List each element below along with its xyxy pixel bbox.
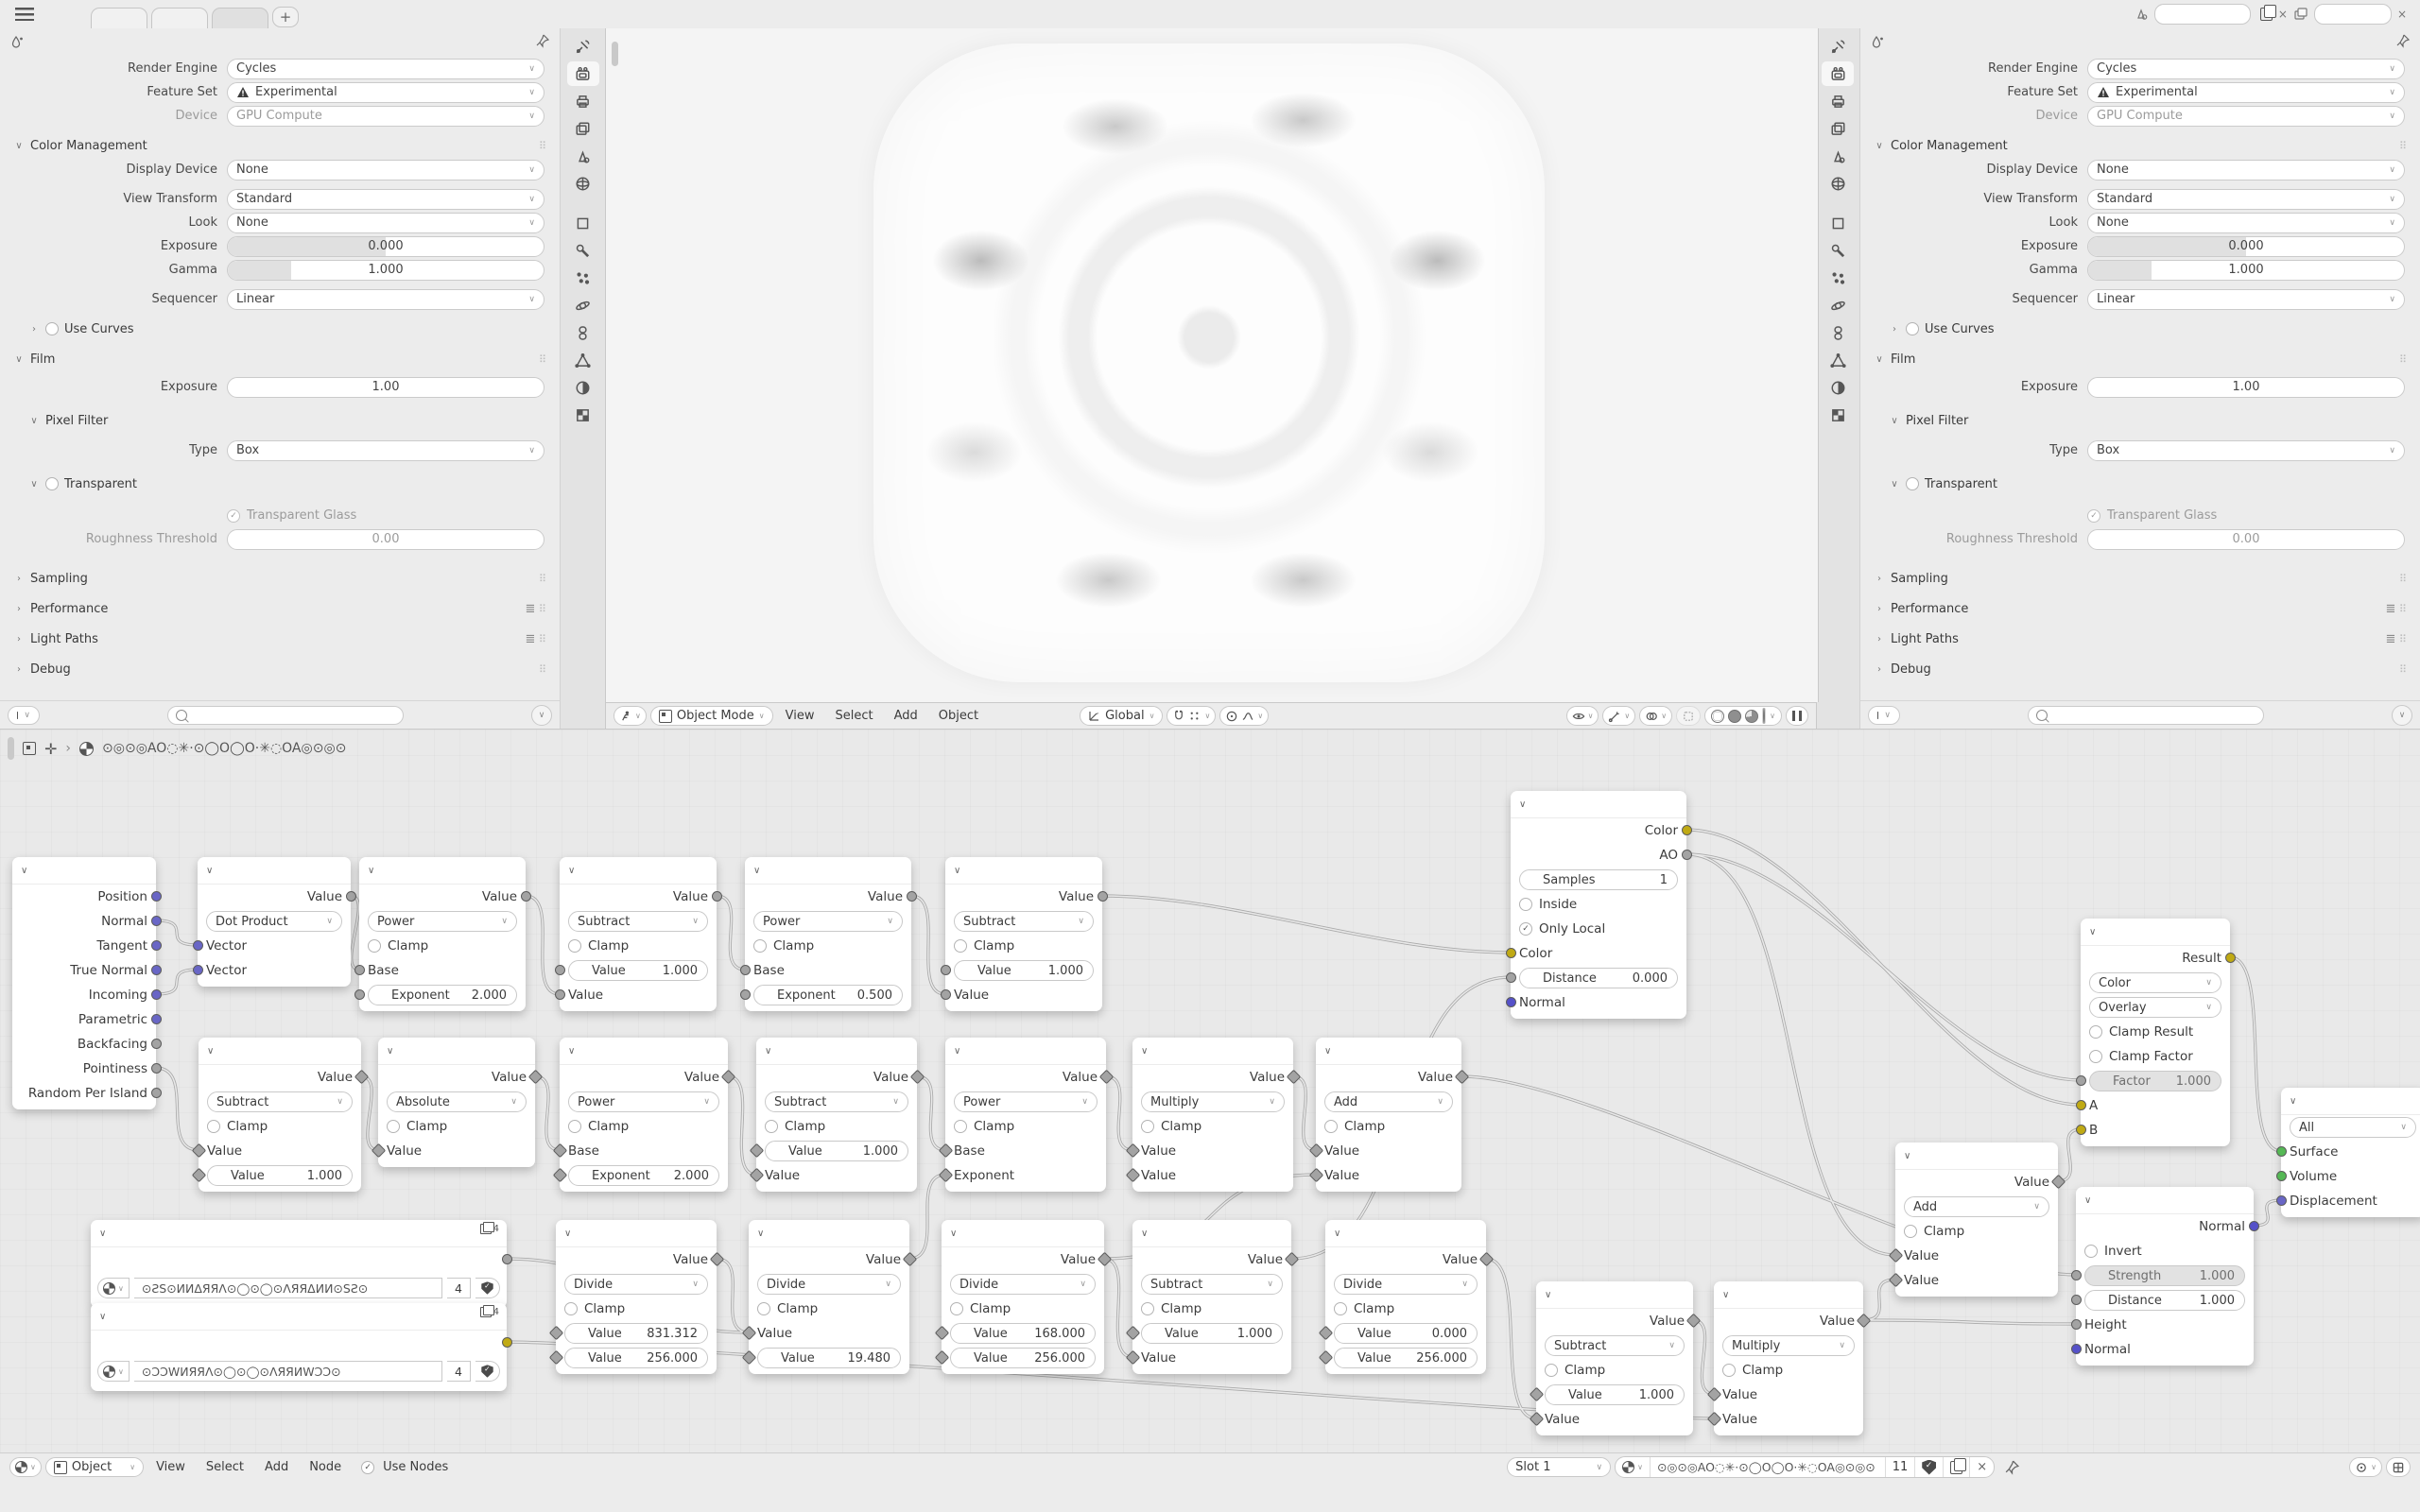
node-dropdown[interactable]: Subtract∨ [1141, 1274, 1283, 1295]
workspace-tab-1[interactable] [91, 8, 147, 29]
node-number-field[interactable]: Value831.312 [564, 1323, 708, 1344]
image-name-field[interactable]: ⊙ƧS⊙ИИΔЯЯΛ⊙◯⊙◯⊙ΛЯЯΔИИ⊙SƧ⊙ [134, 1278, 442, 1298]
section-sampling[interactable]: ›Sampling⠿ [1860, 566, 2420, 591]
input-socket[interactable] [1506, 972, 1516, 983]
node-header[interactable]: ∨ [1132, 1038, 1293, 1065]
node-header[interactable]: ∨ [945, 857, 1102, 885]
roughness-threshold-field[interactable]: 0.00 [2087, 529, 2405, 550]
node-img2[interactable]: ∨4∨⊙ƆƆWИЯЯΛ⊙◯⊙◯⊙ΛЯЯИWƆƆ⊙4 [91, 1303, 507, 1391]
sequencer-dropdown[interactable]: Linear∨ [227, 289, 544, 310]
node-pow4[interactable]: ∨ValuePower∨ClampBaseExponent [945, 1038, 1106, 1192]
node-dropdown[interactable]: Color∨ [2089, 972, 2221, 993]
node-header[interactable]: ∨ [556, 1220, 717, 1247]
node-checkbox[interactable] [757, 1302, 770, 1315]
node-checkbox[interactable] [1141, 1302, 1154, 1315]
tab-view-layer[interactable] [1822, 116, 1854, 141]
node-header[interactable]: ∨ [12, 857, 156, 885]
node-pow3[interactable]: ∨ValuePower∨ClampBaseExponent2.000 [560, 1038, 728, 1192]
options-chevron-button[interactable]: ∨ [2392, 705, 2412, 726]
node-checkbox[interactable]: ✓ [1519, 922, 1532, 936]
look-dropdown[interactable]: None∨ [2087, 213, 2405, 233]
viewport-object[interactable] [873, 43, 1545, 682]
node-number-field[interactable]: Value0.000 [1334, 1323, 1478, 1344]
film-exposure-field[interactable]: 1.00 [2087, 377, 2405, 398]
gizmo-dropdown[interactable]: ∨ [1602, 706, 1635, 726]
node-dropdown[interactable]: All∨ [2290, 1117, 2416, 1138]
image-users-count[interactable]: 4 [447, 1278, 471, 1298]
node-number-field[interactable]: Distance1.000 [2084, 1290, 2245, 1311]
input-socket[interactable] [2276, 1146, 2287, 1157]
properties-search-input[interactable] [2028, 706, 2264, 725]
xray-toggle[interactable] [1676, 706, 1701, 726]
node-number-field[interactable]: Distance0.000 [1519, 968, 1678, 988]
shading-wireframe-button[interactable] [1711, 710, 1724, 723]
image-fake-user-toggle[interactable] [475, 1361, 500, 1382]
tab-constraints[interactable] [1822, 320, 1854, 345]
image-browse-dropdown[interactable]: ∨ [97, 1278, 130, 1298]
node-number-field[interactable]: Exponent0.500 [753, 985, 903, 1005]
node-number-field[interactable]: Value256.000 [950, 1348, 1096, 1368]
input-socket[interactable] [2071, 1270, 2082, 1280]
unlink-material-button[interactable]: × [1970, 1457, 1994, 1477]
filter-toggle-dropdown[interactable]: ∨ [1868, 706, 1900, 725]
pause-render-button[interactable] [1786, 706, 1808, 726]
pixel-filter-type-dropdown[interactable]: Box∨ [2087, 440, 2405, 461]
node-dropdown[interactable]: Subtract∨ [207, 1091, 353, 1112]
input-socket[interactable] [193, 940, 203, 951]
node-header[interactable]: ∨ [1316, 1038, 1461, 1065]
input-socket[interactable] [354, 989, 365, 1000]
section-color-management[interactable]: ∨Color Management⠿ [0, 133, 560, 158]
input-socket[interactable] [740, 989, 751, 1000]
output-socket[interactable] [502, 1337, 512, 1348]
node-sub1[interactable]: ∨ValueSubtract∨ClampValue1.000Value [560, 857, 717, 1011]
output-socket[interactable] [1682, 850, 1692, 860]
section-light-paths[interactable]: ›Light Paths≣ ⠿ [0, 627, 560, 651]
node-header[interactable]: ∨ [1511, 791, 1686, 818]
menu-select[interactable]: Select [826, 709, 881, 723]
remove-viewlayer-icon[interactable]: × [2397, 8, 2407, 21]
node-dropdown[interactable]: Power∨ [368, 911, 517, 932]
tab-view-layer[interactable] [567, 116, 599, 141]
tab-tool[interactable] [567, 34, 599, 59]
node-number-field[interactable]: Value1.000 [954, 960, 1094, 981]
section-transparent[interactable]: ∨Transparent [0, 472, 560, 496]
node-number-field[interactable]: Value1.000 [207, 1165, 353, 1186]
output-socket[interactable] [2225, 953, 2236, 963]
node-checkbox[interactable] [2084, 1245, 2098, 1258]
output-socket[interactable] [151, 940, 162, 951]
section-performance[interactable]: ›Performance≣ ⠿ [1860, 596, 2420, 621]
workspace-tab-2[interactable] [151, 8, 208, 29]
node-dropdown[interactable]: Subtract∨ [568, 911, 708, 932]
node-number-field[interactable]: Exponent2.000 [368, 985, 517, 1005]
tab-material[interactable] [567, 375, 599, 400]
node-dropdown[interactable]: Overlay∨ [2089, 997, 2221, 1018]
output-socket[interactable] [151, 1014, 162, 1024]
node-header[interactable]: ∨ [749, 1220, 909, 1247]
editor-type-shader-dropdown[interactable]: ∨ [9, 1457, 42, 1477]
menu-object[interactable]: Object [930, 709, 987, 723]
input-socket[interactable] [2076, 1075, 2086, 1086]
node-checkbox[interactable] [950, 1302, 963, 1315]
node-dropdown[interactable]: Power∨ [568, 1091, 719, 1112]
sequencer-dropdown[interactable]: Linear∨ [2087, 289, 2405, 310]
transparent-glass-checkbox[interactable]: ✓ [2087, 509, 2100, 523]
output-socket[interactable] [151, 1063, 162, 1074]
node-bump[interactable]: ∨NormalInvertStrength1.000Distance1.000H… [2076, 1187, 2254, 1366]
section-transparent[interactable]: ∨Transparent [1860, 472, 2420, 496]
output-socket[interactable] [151, 965, 162, 975]
overlays-dropdown[interactable]: ∨ [1639, 706, 1672, 726]
node-number-field[interactable]: Value256.000 [564, 1348, 708, 1368]
node-header[interactable]: ∨ [359, 857, 526, 885]
node-header[interactable]: ∨ [1325, 1220, 1486, 1247]
node-dropdown[interactable]: Multiply∨ [1722, 1335, 1855, 1356]
node-sub4[interactable]: ∨ValueSubtract∨ClampValue1.000Value [756, 1038, 917, 1192]
tab-constraints[interactable] [567, 320, 599, 345]
output-socket[interactable] [521, 891, 531, 902]
node-number-field[interactable]: Samples1 [1519, 869, 1678, 890]
output-socket[interactable] [2249, 1221, 2259, 1231]
node-dropdown[interactable]: Dot Product∨ [206, 911, 342, 932]
feature-set-dropdown[interactable]: Experimental∨ [2087, 82, 2405, 103]
use-curves-checkbox[interactable] [45, 322, 59, 335]
tab-render[interactable] [1822, 61, 1854, 86]
node-header[interactable]: ∨ [199, 1038, 361, 1065]
node-header[interactable]: ∨ [560, 1038, 728, 1065]
node-abs1[interactable]: ∨ValueAbsolute∨ClampValue [378, 1038, 535, 1167]
gamma-slider[interactable]: 1.000 [227, 260, 544, 281]
node-header[interactable]: ∨4 [91, 1303, 507, 1331]
node-checkbox[interactable] [564, 1302, 578, 1315]
node-header[interactable]: ∨ [1132, 1220, 1291, 1247]
exposure-slider[interactable]: 0.000 [2087, 236, 2405, 257]
viewlayer-name-field[interactable] [2314, 4, 2392, 25]
input-socket[interactable] [555, 965, 565, 975]
output-socket[interactable] [151, 916, 162, 926]
node-sub6[interactable]: ∨ValueSubtract∨ClampValue1.000Value [1536, 1281, 1693, 1435]
roughness-threshold-field[interactable]: 0.00 [227, 529, 544, 550]
node-checkbox[interactable] [2089, 1050, 2102, 1063]
node-header[interactable]: ∨ [1536, 1281, 1693, 1309]
node-menu-select[interactable]: Select [198, 1460, 252, 1474]
output-socket[interactable] [151, 891, 162, 902]
pin-icon[interactable] [535, 33, 550, 52]
input-socket[interactable] [2071, 1344, 2082, 1354]
device-dropdown[interactable]: GPU Compute∨ [2087, 106, 2405, 127]
viewport-drag-handle[interactable] [612, 42, 618, 66]
tab-particles[interactable] [567, 266, 599, 290]
node-mul2[interactable]: ∨ValueMultiply∨ClampValueValue [1714, 1281, 1863, 1435]
add-workspace-button[interactable]: + [272, 7, 299, 27]
node-number-field[interactable]: Value1.000 [1141, 1323, 1283, 1344]
film-exposure-field[interactable]: 1.00 [227, 377, 544, 398]
shading-solid-button[interactable] [1728, 710, 1741, 723]
node-out[interactable]: ∨All∨SurfaceVolumeDisplacement [2281, 1088, 2420, 1217]
node-checkbox[interactable] [1545, 1364, 1558, 1377]
properties-search-input[interactable] [167, 706, 404, 725]
node-number-field[interactable]: Value168.000 [950, 1323, 1096, 1344]
node-checkbox[interactable] [954, 939, 967, 953]
node-checkbox[interactable] [207, 1120, 220, 1133]
node-number-field[interactable]: Value1.000 [765, 1141, 908, 1161]
view-transform-dropdown[interactable]: Standard∨ [227, 189, 544, 210]
node-header[interactable]: ∨4 [91, 1220, 507, 1247]
exposure-slider[interactable]: 0.000 [227, 236, 544, 257]
transparent-checkbox[interactable] [1906, 477, 1919, 490]
node-checkbox[interactable] [2089, 1025, 2102, 1039]
look-dropdown[interactable]: None∨ [227, 213, 544, 233]
node-dropdown[interactable]: Add∨ [1904, 1196, 2049, 1217]
output-socket[interactable] [346, 891, 356, 902]
node-pow1[interactable]: ∨ValuePower∨ClampBaseExponent2.000 [359, 857, 526, 1011]
slot-dropdown[interactable]: Slot 1∨ [1507, 1457, 1611, 1477]
node-checkbox[interactable] [368, 939, 381, 953]
show-visibility-dropdown[interactable]: ∨ [1566, 706, 1599, 726]
tab-output[interactable] [567, 89, 599, 113]
node-number-field[interactable]: Value1.000 [568, 960, 708, 981]
node-add1[interactable]: ∨ValueAdd∨ClampValueValue [1316, 1038, 1461, 1192]
node-checkbox[interactable] [1904, 1225, 1917, 1238]
node-number-field[interactable]: Factor1.000 [2089, 1071, 2221, 1091]
image-fake-user-toggle[interactable] [475, 1278, 500, 1298]
tab-scene[interactable] [567, 144, 599, 168]
tab-texture[interactable] [1822, 403, 1854, 427]
scene-name-field[interactable] [2154, 4, 2251, 25]
input-socket[interactable] [941, 965, 951, 975]
shader-node-editor[interactable]: ✛ › ⊙◎⊙◎AO◌✳·⊙◯O◯O·✳◌OA◎⊙◎⊙ ∨PositionNor… [0, 729, 2420, 1481]
use-curves-checkbox[interactable] [1906, 322, 1919, 335]
transform-orientation-dropdown[interactable]: Global∨ [1080, 706, 1163, 726]
node-sub2[interactable]: ∨ValueSubtract∨ClampValue1.000Value [945, 857, 1102, 1011]
section-debug[interactable]: ›Debug⠿ [0, 657, 560, 681]
output-socket[interactable] [1098, 891, 1108, 902]
fake-user-toggle[interactable] [1915, 1457, 1944, 1477]
node-number-field[interactable]: Value19.480 [757, 1348, 901, 1368]
node-checkbox[interactable] [387, 1120, 400, 1133]
node-dropdown[interactable]: Subtract∨ [765, 1091, 908, 1112]
input-socket[interactable] [941, 989, 951, 1000]
input-socket[interactable] [555, 989, 565, 1000]
input-socket[interactable] [2071, 1295, 2082, 1305]
pin-icon[interactable] [2004, 1459, 2020, 1475]
render-engine-dropdown[interactable]: Cycles∨ [227, 59, 544, 79]
snapping-toggle[interactable]: ∨ [2349, 1457, 2382, 1477]
input-socket[interactable] [2076, 1125, 2086, 1135]
input-socket[interactable] [354, 965, 365, 975]
node-header[interactable]: ∨ [945, 1038, 1106, 1065]
node-header[interactable]: ∨ [942, 1220, 1104, 1247]
section-pixel-filter[interactable]: ∨Pixel Filter [0, 408, 560, 433]
render-engine-dropdown[interactable]: Cycles∨ [2087, 59, 2405, 79]
section-use-curves[interactable]: ›Use Curves [0, 317, 560, 341]
tab-object[interactable] [567, 211, 599, 235]
snap-toggle-group[interactable]: ∨ [1167, 706, 1216, 726]
input-socket[interactable] [193, 965, 203, 975]
tab-render[interactable] [567, 61, 599, 86]
node-header[interactable]: ∨ [198, 857, 351, 885]
feature-set-dropdown[interactable]: Experimental∨ [227, 82, 544, 103]
editor-drag-handle[interactable] [8, 737, 14, 760]
tab-particles[interactable] [1822, 266, 1854, 290]
node-div1[interactable]: ∨ValueDivide∨ClampValue831.312Value256.0… [556, 1220, 717, 1374]
input-socket[interactable] [2071, 1319, 2082, 1330]
input-socket[interactable] [1506, 997, 1516, 1007]
proportional-editing-group[interactable]: ∨ [1219, 706, 1269, 726]
node-mix[interactable]: ∨ResultColor∨Overlay∨Clamp ResultClamp F… [2081, 919, 2230, 1146]
section-pixel-filter[interactable]: ∨Pixel Filter [1860, 408, 2420, 433]
tab-world[interactable] [1822, 171, 1854, 196]
display-device-dropdown[interactable]: None∨ [227, 160, 544, 180]
node-dropdown[interactable]: Add∨ [1324, 1091, 1453, 1112]
node-header[interactable]: ∨ [756, 1038, 917, 1065]
node-header[interactable]: ∨ [1714, 1281, 1863, 1309]
node-dropdown[interactable]: Divide∨ [564, 1274, 708, 1295]
section-sampling[interactable]: ›Sampling⠿ [0, 566, 560, 591]
tab-modifiers[interactable] [567, 238, 599, 263]
shading-material-button[interactable] [1745, 710, 1758, 723]
menu-view[interactable]: View [777, 709, 823, 723]
input-socket[interactable] [1506, 948, 1516, 958]
app-menu-icon[interactable] [15, 8, 34, 21]
node-header[interactable]: ∨ [1895, 1143, 2058, 1170]
new-scene-icon[interactable] [2260, 8, 2273, 21]
output-socket[interactable] [712, 891, 722, 902]
tab-tool[interactable] [1822, 34, 1854, 59]
image-users-count[interactable]: 4 [447, 1361, 471, 1382]
filter-toggle-dropdown[interactable]: ∨ [8, 706, 40, 725]
tab-physics[interactable] [1822, 293, 1854, 318]
node-dot[interactable]: ∨ValueDot Product∨VectorVector [198, 857, 351, 987]
section-film[interactable]: ∨Film⠿ [1860, 347, 2420, 371]
node-checkbox[interactable] [1722, 1364, 1736, 1377]
shader-type-dropdown[interactable]: Object∨ [45, 1457, 144, 1477]
output-socket[interactable] [151, 989, 162, 1000]
view-transform-dropdown[interactable]: Standard∨ [2087, 189, 2405, 210]
node-sub3[interactable]: ∨ValueSubtract∨ClampValueValue1.000 [199, 1038, 361, 1192]
node-header[interactable]: ∨ [745, 857, 911, 885]
node-checkbox[interactable] [765, 1120, 778, 1133]
overlay-toggle[interactable] [2386, 1457, 2411, 1477]
tab-output[interactable] [1822, 89, 1854, 113]
node-dropdown[interactable]: Divide∨ [950, 1274, 1096, 1295]
node-checkbox[interactable] [1324, 1120, 1338, 1133]
tab-scene[interactable] [1822, 144, 1854, 168]
tab-modifiers[interactable] [1822, 238, 1854, 263]
node-dropdown[interactable]: Divide∨ [757, 1274, 901, 1295]
input-socket[interactable] [740, 965, 751, 975]
node-dropdown[interactable]: Divide∨ [1334, 1274, 1478, 1295]
tab-object[interactable] [1822, 211, 1854, 235]
output-socket[interactable] [502, 1254, 512, 1264]
output-socket[interactable] [1682, 825, 1692, 835]
node-div2[interactable]: ∨ValueDivide∨ClampValueValue19.480 [749, 1220, 909, 1374]
node-checkbox[interactable] [1334, 1302, 1347, 1315]
node-menu-node[interactable]: Node [301, 1460, 350, 1474]
node-checkbox[interactable] [568, 939, 581, 953]
node-header[interactable]: ∨ [2081, 919, 2230, 946]
node-number-field[interactable]: Strength1.000 [2084, 1265, 2245, 1286]
copy-material-button[interactable] [1944, 1457, 1970, 1477]
node-geo[interactable]: ∨PositionNormalTangentTrue NormalIncomin… [12, 857, 156, 1109]
shading-rendered-button[interactable] [1762, 708, 1766, 724]
material-browse-dropdown[interactable]: ∨ [1616, 1457, 1651, 1477]
node-number-field[interactable]: Value1.000 [1545, 1384, 1685, 1405]
section-color-management[interactable]: ∨Color Management⠿ [1860, 133, 2420, 158]
material-users-count[interactable]: 11 [1886, 1457, 1916, 1477]
menu-add[interactable]: Add [886, 709, 926, 723]
tab-texture[interactable] [567, 403, 599, 427]
node-dropdown[interactable]: Power∨ [954, 1091, 1098, 1112]
node-menu-add[interactable]: Add [256, 1460, 297, 1474]
use-nodes-checkbox[interactable]: ✓ [361, 1461, 374, 1474]
mode-dropdown[interactable]: Object Mode∨ [650, 706, 773, 726]
tab-world[interactable] [567, 171, 599, 196]
node-img1[interactable]: ∨4∨⊙ƧS⊙ИИΔЯЯΛ⊙◯⊙◯⊙ΛЯЯΔИИ⊙SƧ⊙4 [91, 1220, 507, 1308]
node-checkbox[interactable] [1141, 1120, 1154, 1133]
unlink-scene-icon[interactable]: × [2278, 8, 2288, 21]
node-add2[interactable]: ∨ValueAdd∨ClampValueValue [1895, 1143, 2058, 1297]
node-dropdown[interactable]: Subtract∨ [954, 911, 1094, 932]
node-div3[interactable]: ∨ValueDivide∨ClampValue168.000Value256.0… [942, 1220, 1104, 1374]
image-name-field[interactable]: ⊙ƆƆWИЯЯΛ⊙◯⊙◯⊙ΛЯЯИWƆƆ⊙ [134, 1361, 442, 1382]
tab-material[interactable] [1822, 375, 1854, 400]
image-browse-dropdown[interactable]: ∨ [97, 1361, 130, 1382]
tab-object-data[interactable] [567, 348, 599, 372]
tab-object-data[interactable] [1822, 348, 1854, 372]
input-socket[interactable] [2276, 1171, 2287, 1181]
node-dropdown[interactable]: Subtract∨ [1545, 1335, 1685, 1356]
node-checkbox[interactable] [1519, 898, 1532, 911]
transparent-checkbox[interactable] [45, 477, 59, 490]
gamma-slider[interactable]: 1.000 [2087, 260, 2405, 281]
node-checkbox[interactable] [954, 1120, 967, 1133]
output-socket[interactable] [907, 891, 917, 902]
output-socket[interactable] [151, 1039, 162, 1049]
node-mul1[interactable]: ∨ValueMultiply∨ClampValueValue [1132, 1038, 1293, 1192]
node-number-field[interactable]: Exponent2.000 [568, 1165, 719, 1186]
node-dropdown[interactable]: Absolute∨ [387, 1091, 527, 1112]
workspace-tab-3-active[interactable] [212, 8, 268, 29]
pin-icon[interactable] [2395, 33, 2411, 52]
node-pow2[interactable]: ∨ValuePower∨ClampBaseExponent0.500 [745, 857, 911, 1011]
node-header[interactable]: ∨ [378, 1038, 535, 1065]
transparent-glass-checkbox[interactable]: ✓ [227, 509, 240, 523]
node-ao[interactable]: ∨ColorAOSamples1Inside✓Only LocalColorDi… [1511, 791, 1686, 1019]
node-div4[interactable]: ∨ValueDivide∨ClampValue0.000Value256.000 [1325, 1220, 1486, 1374]
node-sub5[interactable]: ∨ValueSubtract∨ClampValue1.000Value [1132, 1220, 1291, 1374]
section-debug[interactable]: ›Debug⠿ [1860, 657, 2420, 681]
node-dropdown[interactable]: Multiply∨ [1141, 1091, 1285, 1112]
node-header[interactable]: ∨ [2076, 1187, 2254, 1214]
section-use-curves[interactable]: ›Use Curves [1860, 317, 2420, 341]
node-checkbox[interactable] [753, 939, 767, 953]
section-performance[interactable]: ›Performance≣ ⠿ [0, 596, 560, 621]
node-dropdown[interactable]: Power∨ [753, 911, 903, 932]
device-dropdown[interactable]: GPU Compute∨ [227, 106, 544, 127]
options-chevron-button[interactable]: ∨ [531, 705, 552, 726]
output-socket[interactable] [151, 1088, 162, 1098]
node-checkbox[interactable] [568, 1120, 581, 1133]
node-header[interactable]: ∨ [560, 857, 717, 885]
display-device-dropdown[interactable]: None∨ [2087, 160, 2405, 180]
material-name-field[interactable]: ⊙◎⊙◎AO◌✳·⊙◯O◯O·✳◌OA◎⊙◎⊙ [1651, 1457, 1886, 1477]
section-film[interactable]: ∨Film⠿ [0, 347, 560, 371]
node-menu-view[interactable]: View [147, 1460, 194, 1474]
viewport-3d[interactable] [605, 28, 1819, 702]
node-header[interactable]: ∨ [2281, 1088, 2420, 1115]
